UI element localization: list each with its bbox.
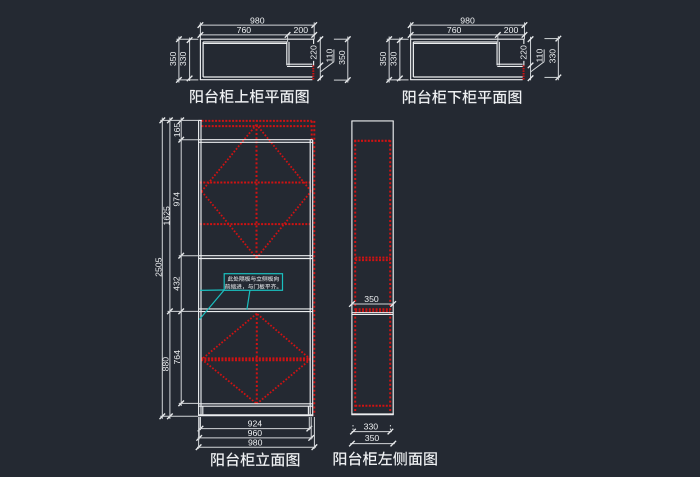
svg-text:980: 980 [248,437,263,447]
svg-text:924: 924 [248,418,263,428]
svg-text:432: 432 [172,276,182,291]
svg-text:1625: 1625 [161,206,171,225]
svg-text:880: 880 [161,357,171,372]
svg-text:330: 330 [364,421,379,431]
svg-text:330: 330 [388,51,398,66]
svg-text:330: 330 [178,51,188,66]
svg-text:980: 980 [460,15,475,25]
svg-text:350: 350 [337,50,347,65]
svg-text:110: 110 [324,49,334,63]
svg-text:350: 350 [364,294,379,304]
svg-text:220: 220 [519,45,529,60]
svg-text:764: 764 [172,350,182,365]
svg-text:350: 350 [378,51,388,66]
svg-text:760: 760 [447,25,462,35]
svg-text:220: 220 [308,45,318,60]
svg-text:330: 330 [547,49,557,64]
svg-text:974: 974 [172,192,182,207]
svg-text:350: 350 [365,433,380,443]
svg-text:350: 350 [168,51,178,66]
svg-text:110: 110 [535,49,545,63]
svg-text:200: 200 [504,25,519,35]
svg-text:2505: 2505 [153,257,163,276]
svg-text:200: 200 [294,25,309,35]
svg-text:165: 165 [172,123,182,138]
svg-text:760: 760 [237,25,252,35]
svg-text:980: 980 [250,15,265,25]
